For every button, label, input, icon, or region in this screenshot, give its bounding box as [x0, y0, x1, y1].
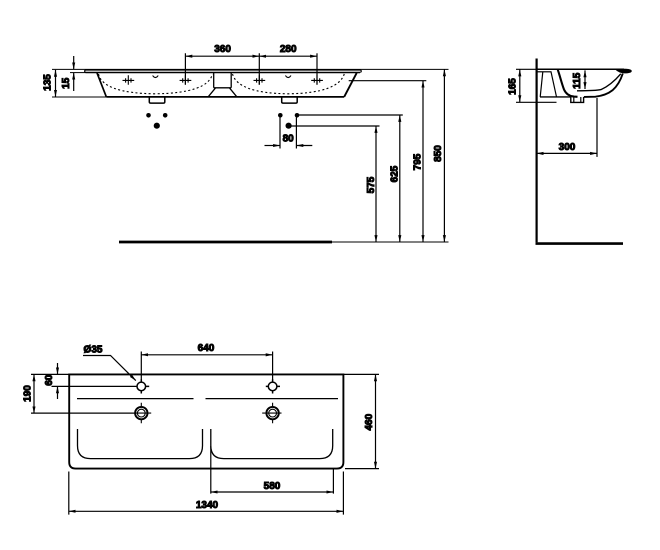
svg-text:795: 795: [412, 153, 423, 170]
svg-text:580: 580: [264, 481, 281, 492]
svg-text:300: 300: [559, 142, 576, 153]
svg-text:Ø35: Ø35: [84, 344, 103, 355]
svg-text:850: 850: [433, 145, 444, 162]
svg-text:280: 280: [280, 44, 297, 55]
svg-text:165: 165: [508, 78, 519, 95]
svg-text:60: 60: [44, 374, 55, 386]
svg-text:135: 135: [42, 74, 53, 91]
svg-text:625: 625: [389, 165, 400, 182]
svg-text:575: 575: [366, 176, 377, 193]
svg-text:1340: 1340: [196, 500, 219, 511]
svg-text:15: 15: [61, 77, 72, 89]
svg-text:640: 640: [198, 343, 215, 354]
svg-text:80: 80: [283, 134, 295, 145]
svg-text:460: 460: [364, 413, 375, 430]
svg-text:360: 360: [214, 44, 231, 55]
svg-text:190: 190: [22, 385, 33, 402]
svg-text:115: 115: [572, 72, 583, 89]
